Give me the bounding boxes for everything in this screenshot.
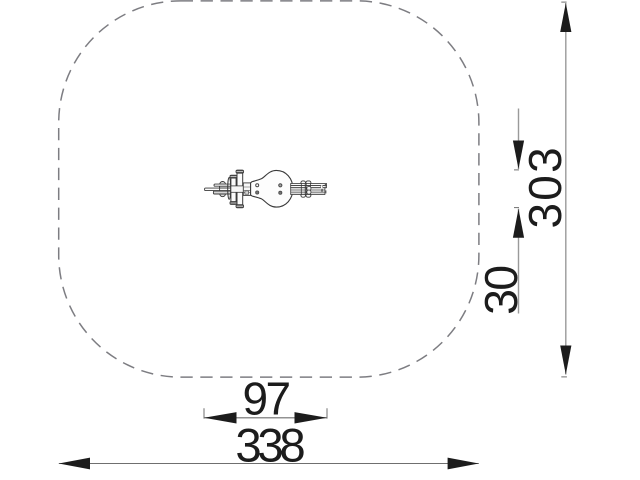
svg-text:30: 30: [475, 265, 527, 315]
svg-text:338: 338: [235, 420, 305, 473]
svg-text:303: 303: [519, 147, 571, 228]
svg-text:97: 97: [243, 373, 292, 425]
